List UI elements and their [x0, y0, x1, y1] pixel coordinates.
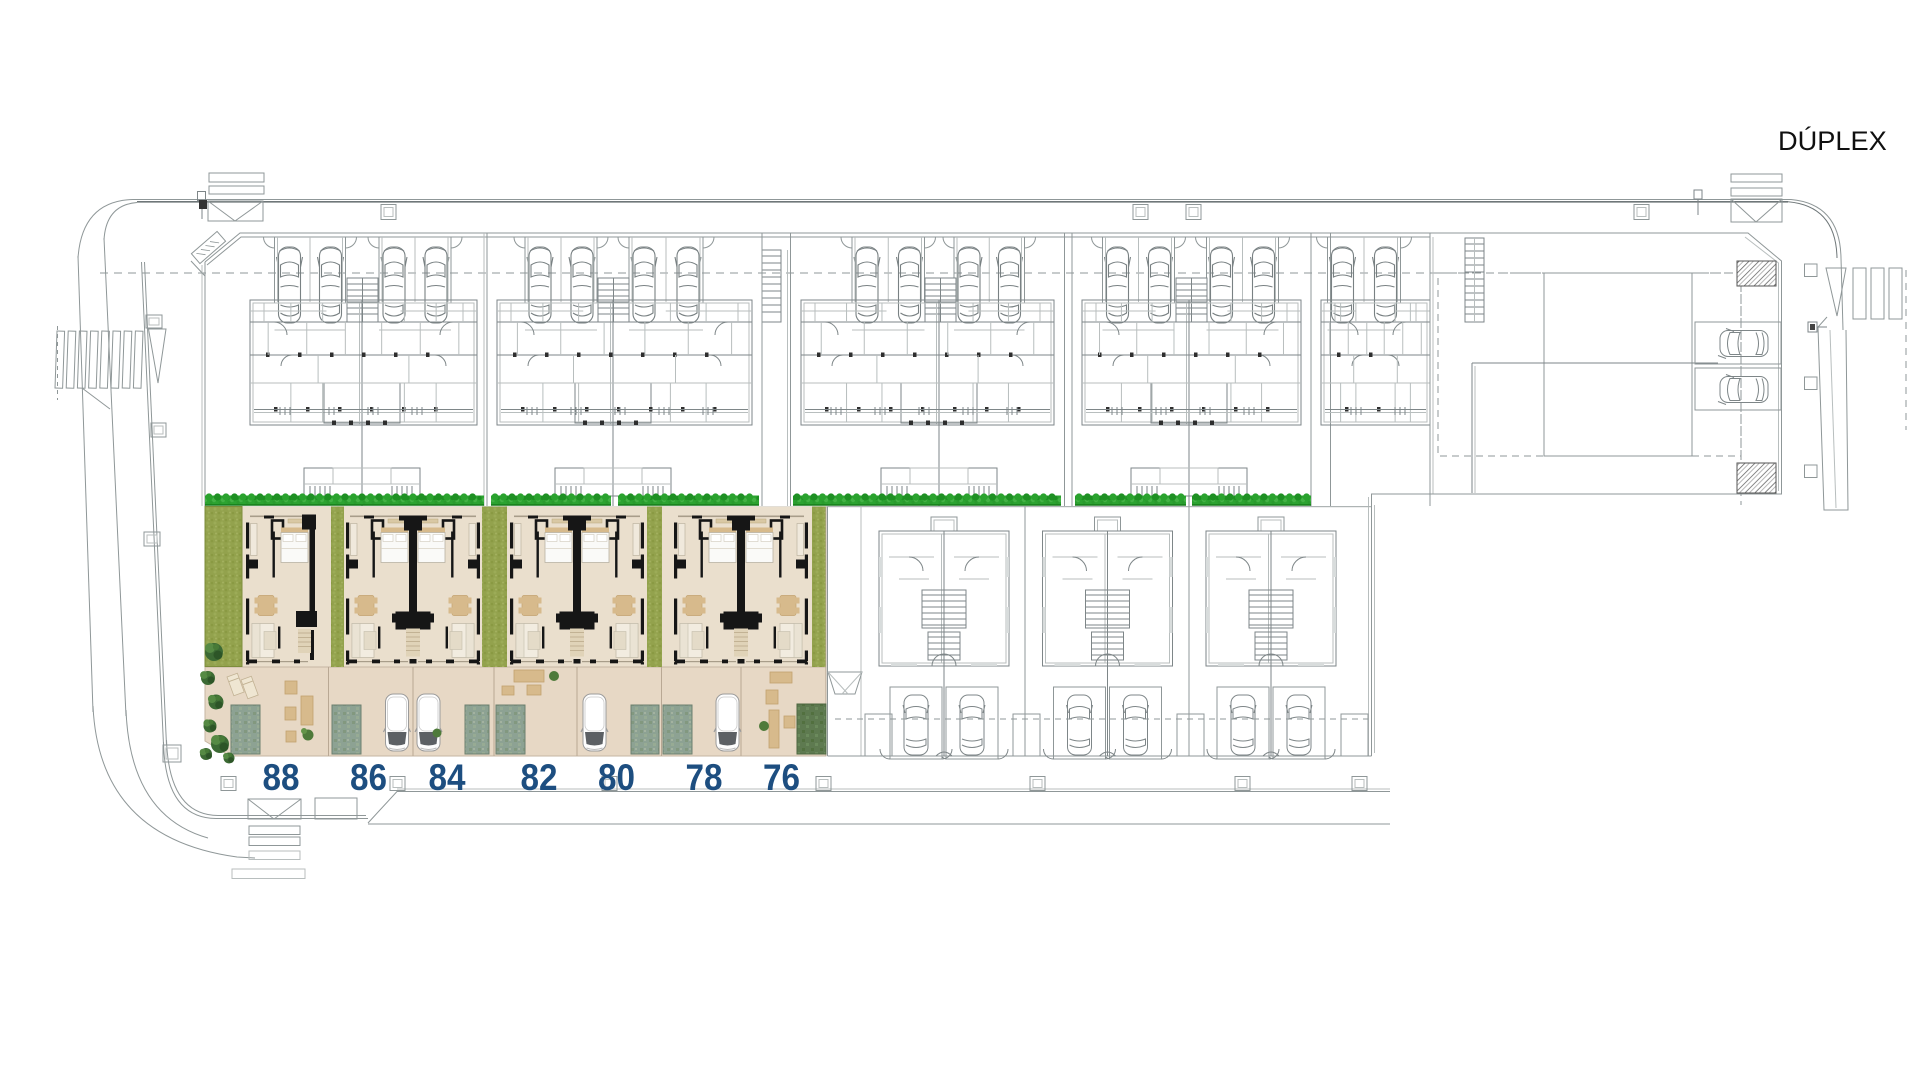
svg-text:86: 86 [350, 756, 387, 798]
svg-text:88: 88 [263, 756, 300, 798]
svg-text:84: 84 [429, 756, 466, 798]
svg-text:76: 76 [763, 756, 800, 798]
svg-text:82: 82 [521, 756, 558, 798]
svg-text:80: 80 [598, 756, 635, 798]
svg-text:DÚPLEX: DÚPLEX [1778, 125, 1887, 156]
svg-text:78: 78 [686, 756, 723, 798]
